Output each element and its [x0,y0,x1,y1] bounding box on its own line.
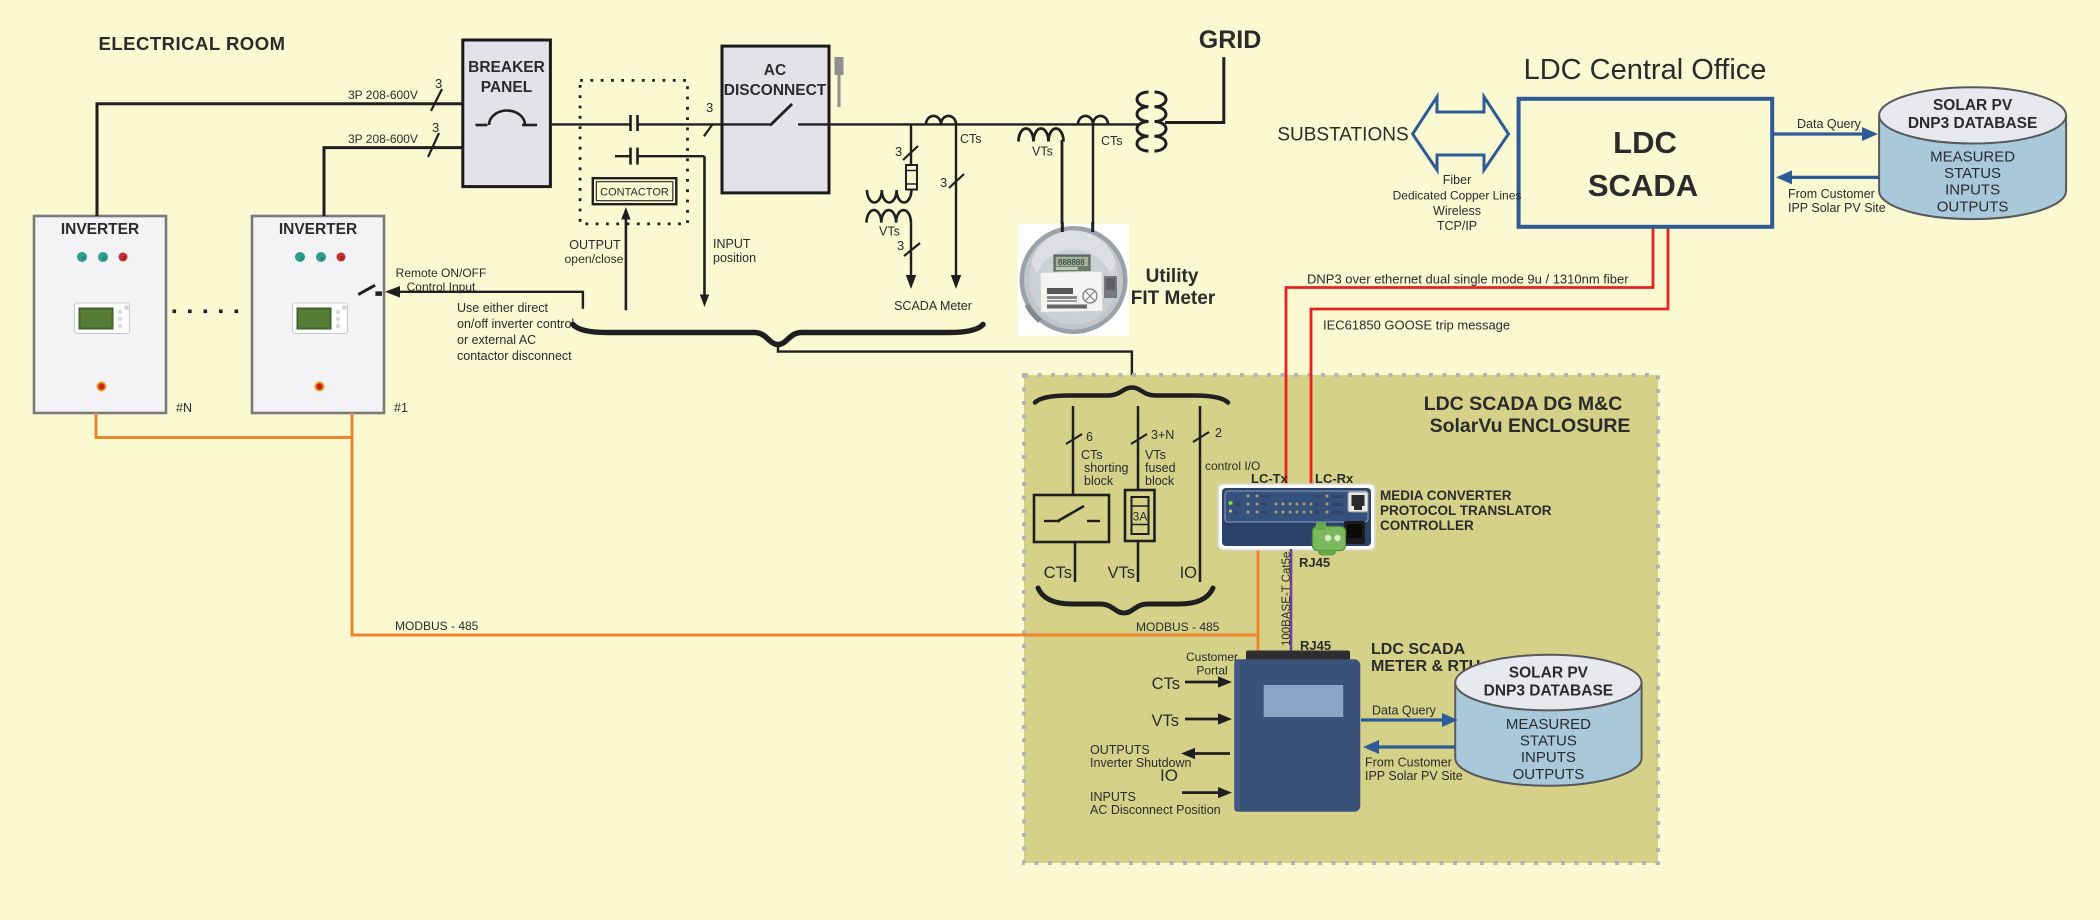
svg-text:From Customer: From Customer [1788,187,1875,201]
svg-text:Utility: Utility [1146,266,1199,287]
svg-text:Customer: Customer [1186,650,1238,664]
svg-text:3: 3 [432,120,439,135]
svg-text:block: block [1084,474,1114,488]
svg-text:AC: AC [764,62,786,79]
svg-text:3P 208-600V: 3P 208-600V [348,132,418,146]
svg-text:LDC SCADA DG M&C: LDC SCADA DG M&C [1424,393,1623,415]
svg-text:DISCONNECT: DISCONNECT [724,82,827,99]
svg-text:CTs: CTs [1101,134,1123,148]
svg-text:VTs: VTs [1032,145,1053,159]
svg-text:3: 3 [940,175,947,190]
svg-text:FIT Meter: FIT Meter [1131,288,1216,309]
svg-text:or external AC: or external AC [457,333,536,347]
svg-text:CONTROLLER: CONTROLLER [1380,518,1474,533]
svg-text:SOLAR PV: SOLAR PV [1933,97,2013,114]
svg-text:3P 208-600V: 3P 208-600V [348,88,418,102]
svg-text:CO: CO [1314,494,1321,499]
svg-text:MEASURED: MEASURED [1506,716,1591,733]
svg-text:SolarVu ENCLOSURE: SolarVu ENCLOSURE [1430,415,1631,437]
svg-text:6: 6 [1086,430,1093,444]
svg-text:fused: fused [1145,461,1176,475]
svg-text:Data Query: Data Query [1372,704,1437,718]
svg-text:3: 3 [897,238,904,253]
svg-text:CTs: CTs [1081,448,1103,462]
svg-text:IPP Solar PV Site: IPP Solar PV Site [1365,769,1463,783]
svg-text:STATUS: STATUS [1944,165,2001,182]
svg-text:DNP3 DATABASE: DNP3 DATABASE [1908,115,2037,132]
svg-text:3: 3 [706,100,713,115]
svg-text:TCP/IP: TCP/IP [1437,219,1477,233]
svg-text:3: 3 [435,76,442,91]
svg-text:position: position [713,251,756,265]
svg-text:AUX2: AUX2 [1331,502,1343,507]
svg-text:SCADA Meter: SCADA Meter [894,299,972,313]
svg-text:Rx: Rx [1261,510,1267,515]
svg-text:OUTPUTS: OUTPUTS [1937,199,2009,216]
svg-text:INVERTER: INVERTER [61,221,139,238]
svg-text:MEDIA CONVERTER: MEDIA CONVERTER [1380,488,1512,503]
svg-text:Wireless: Wireless [1433,204,1481,218]
svg-text:MEASURED: MEASURED [1930,149,2015,166]
svg-text:CONTACTOR: CONTACTOR [600,187,669,199]
svg-text:3A: 3A [1133,510,1148,524]
svg-text:3+N: 3+N [1151,428,1174,442]
svg-text:INPUTS: INPUTS [1090,790,1136,804]
svg-text:SUBSTATIONS: SUBSTATIONS [1277,125,1408,146]
svg-text:ELECTRICAL ROOM: ELECTRICAL ROOM [98,33,285,54]
svg-text:OUTPUT: OUTPUT [569,238,621,252]
svg-text:AUX3: AUX3 [1331,510,1343,515]
svg-text:#1: #1 [394,401,408,415]
svg-text:USA: USA [1261,494,1270,499]
svg-text:888888: 888888 [1058,258,1085,267]
svg-text:INVERTER: INVERTER [279,221,357,238]
svg-text:Data Query: Data Query [1797,117,1862,131]
svg-text:From Customer: From Customer [1365,756,1452,770]
svg-text:SCADA: SCADA [1588,168,1698,203]
svg-text:Remote ON/OFF: Remote ON/OFF [396,266,487,280]
svg-text:IEC61850 GOOSE trip message: IEC61850 GOOSE trip message [1323,318,1510,333]
svg-text:3: 3 [895,144,902,159]
svg-text:AUX1: AUX1 [1331,494,1343,499]
svg-text:CTs: CTs [960,132,982,146]
svg-text:LDC: LDC [1613,125,1677,160]
svg-text:VTs: VTs [1151,712,1179,730]
svg-text:CTs: CTs [1044,564,1072,582]
svg-text:on/off inverter control: on/off inverter control [457,317,574,331]
svg-text:shorting: shorting [1084,461,1129,475]
svg-text:MODBUS - 485: MODBUS - 485 [395,619,479,633]
svg-text:CTs: CTs [1152,675,1180,693]
svg-text:Fiber: Fiber [1443,173,1471,187]
svg-text:MODBUS - 485: MODBUS - 485 [1136,620,1220,634]
svg-text:Tx: Tx [1261,502,1267,507]
svg-text:block: block [1145,474,1175,488]
svg-text:GRID: GRID [1199,26,1262,54]
svg-text:BREAKER: BREAKER [468,59,545,76]
svg-text:VTs: VTs [1145,448,1166,462]
svg-text:Use either direct: Use either direct [457,301,549,315]
svg-text:AC Disconnect Position: AC Disconnect Position [1090,803,1221,817]
svg-text:PANEL: PANEL [481,79,532,96]
svg-text:ON: ON [1234,502,1241,507]
svg-text:INPUTS: INPUTS [1945,182,2000,199]
svg-text:PROTOCOL TRANSLATOR: PROTOCOL TRANSLATOR [1380,503,1552,518]
svg-text:RJ45: RJ45 [1299,555,1330,570]
svg-text:Tx: Tx [1314,502,1320,507]
svg-text:Dedicated Copper Lines: Dedicated Copper Lines [1393,189,1522,203]
svg-text:LDC Central Office: LDC Central Office [1524,54,1767,86]
svg-text:DNP3 DATABASE: DNP3 DATABASE [1484,683,1613,700]
svg-text:IO: IO [1180,564,1198,582]
svg-text:open/close: open/close [565,252,624,266]
svg-text:OUTPUTS: OUTPUTS [1513,766,1585,783]
svg-text:IPP Solar PV Site: IPP Solar PV Site [1788,201,1886,215]
svg-text:LDC SCADA: LDC SCADA [1371,641,1466,658]
svg-text:STATUS: STATUS [1520,733,1577,750]
svg-text:VTs: VTs [1107,564,1135,582]
svg-text:AL: AL [1234,510,1240,515]
svg-text:SOLAR PV: SOLAR PV [1509,665,1589,682]
svg-text:INPUT: INPUT [713,237,751,251]
svg-text:OUTPUTS: OUTPUTS [1090,743,1150,757]
svg-text:2: 2 [1215,426,1222,440]
svg-text:contactor disconnect: contactor disconnect [457,349,572,363]
svg-text:Rx: Rx [1314,510,1320,515]
svg-text:100BASE-T Cat5e: 100BASE-T Cat5e [1281,552,1293,646]
svg-text:VTs: VTs [879,225,900,239]
svg-text:IO: IO [1160,766,1178,785]
svg-text:DNP3 over ethernet dual single: DNP3 over ethernet dual single mode 9u /… [1307,272,1629,287]
svg-text:Portal: Portal [1196,664,1227,678]
svg-text:INPUTS: INPUTS [1521,749,1576,766]
svg-text:Control Input: Control Input [407,280,476,294]
svg-text:#N: #N [176,401,192,415]
